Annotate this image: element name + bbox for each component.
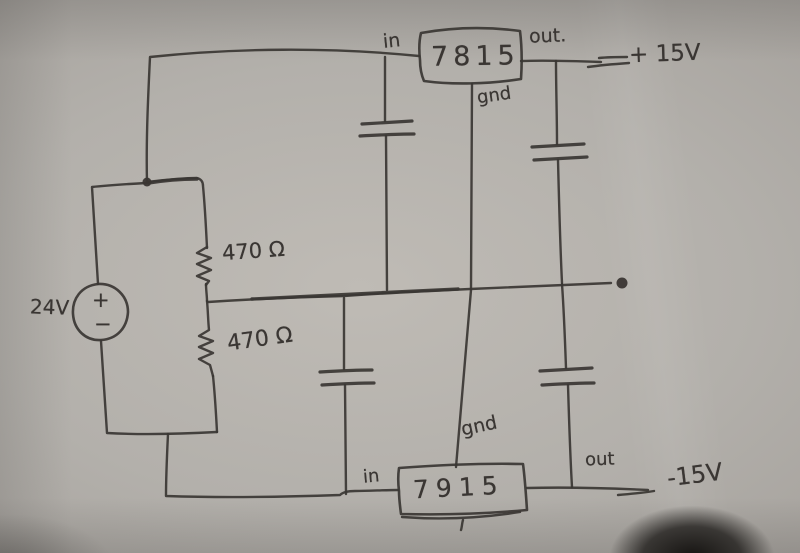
ground-node-dot [617,278,628,289]
wire-c4-bottom [568,385,572,487]
capacitor-c3 [532,61,587,283]
ground-rail [208,278,628,303]
label-7815-pin-in: in [382,29,402,53]
c3-plate-bottom [534,157,587,160]
wire-c3-bottom [558,160,562,283]
wire-divider-top [147,178,207,248]
c2-plate-bottom [322,383,374,385]
resistor-divider [147,178,217,432]
wire-source-positive [92,183,146,284]
capacitor-c2 [320,298,374,494]
wire-divider-mid [206,284,207,301]
wire-top-rail [147,50,419,183]
c4-plate-top [540,368,592,371]
wire-c4-top [562,284,566,368]
reg-7915-bottom-tick [461,520,463,530]
label-r1-value: 470 Ω [221,237,285,265]
label-7815-part: 7815 [431,40,520,73]
wire-7815-out [521,61,601,62]
schematic-photo: in out. 7815 gnd + 15V 24V + − 470 Ω 470… [0,0,800,553]
label-7915-pin-out: out [585,448,615,470]
c3-plate-top [532,144,584,147]
wire-divider-bottom [213,376,217,432]
capacitor-c1 [360,57,414,290]
source-minus-sign: − [94,312,112,336]
wire-source-negative-loop [101,341,217,434]
wire-c1-bottom [386,136,387,290]
label-source-voltage: 24V [30,294,70,319]
wire-7915-out-end-dash [618,491,654,495]
wire-7915-out [527,488,648,490]
wire-c3-top [556,61,557,144]
positive-input-rail [147,50,419,183]
c2-plate-top [320,370,372,372]
resistor-r2-symbol [199,301,213,376]
label-7815-pin-out: out. [529,24,567,47]
wire-c2-bottom [345,385,346,494]
label-positive-rail: + 15V [629,40,701,68]
label-7915-pin-in: in [362,465,380,487]
wire-7815-gnd [471,84,472,289]
label-7915-part: 7915 [412,471,505,505]
resistor-r1-symbol [197,247,211,285]
c1-plate-top [362,121,412,124]
wire-7815-out-end-dash1 [588,63,629,67]
junction-dot-top-left [143,178,152,187]
source-plus-sign: + [92,288,110,312]
wire-7815-out-end-dash2 [599,57,627,58]
wire-ground-rail-retrace [252,289,458,299]
